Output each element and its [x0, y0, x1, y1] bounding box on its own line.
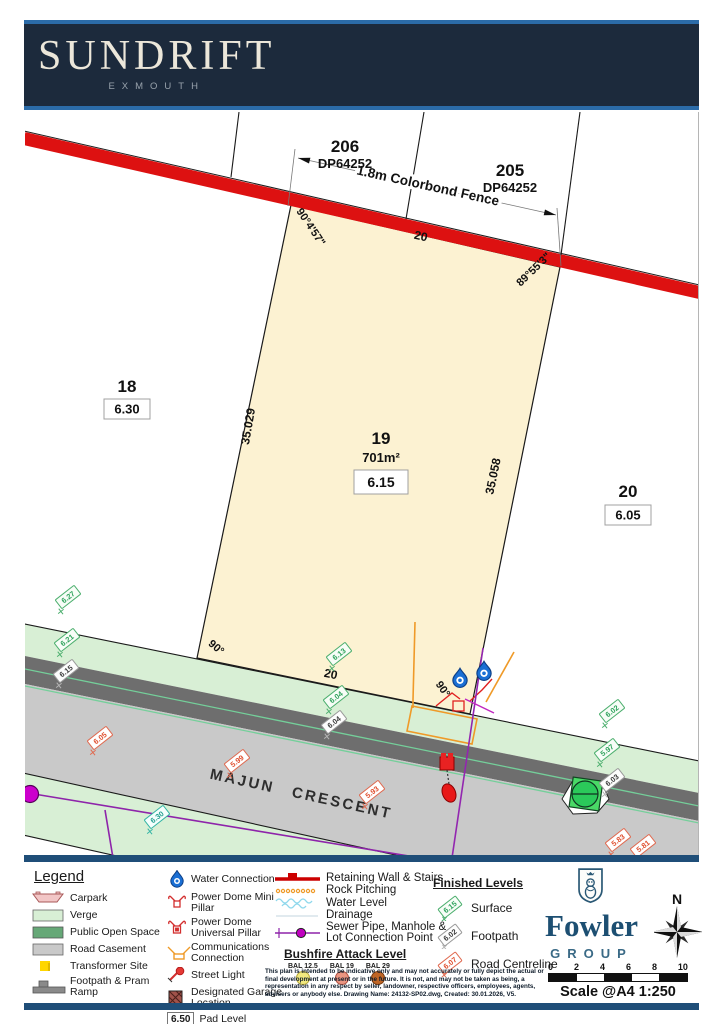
transformer-site-icon — [32, 959, 70, 973]
group-wordmark: GROUP — [519, 946, 664, 961]
lot-19-area: 701m² — [362, 450, 400, 465]
legend-lines-column: Retaining Wall & Stairs Rock Pitching Wa… — [274, 862, 449, 985]
lot-205-ref: DP64252 — [483, 180, 537, 195]
scale-bar-segments — [548, 973, 688, 982]
power-dome-mini-pillar-icon — [167, 894, 191, 912]
lot-19-pad-level: 6.15 — [367, 474, 394, 490]
finished-levels-title: Finished Levels — [433, 876, 568, 890]
legend-item-sewer: Sewer Pipe, Manhole & Lot Connection Poi… — [274, 922, 449, 944]
lot-20-pad-level: 6.05 — [615, 508, 640, 523]
lot-206-number: 206 — [331, 137, 359, 156]
legend-top-bar — [24, 855, 699, 862]
legend-item-verge: Verge — [32, 908, 167, 922]
bushfire-title: Bushfire Attack Level — [284, 947, 449, 961]
water-level-icon — [274, 897, 326, 909]
lot-20-number: 20 — [619, 482, 638, 501]
lot-18-number: 18 — [118, 377, 137, 396]
public-open-space-swatch-icon — [32, 925, 70, 939]
fence-label: 1.8m Colorbond Fence — [355, 163, 501, 209]
lot-19-number: 19 — [372, 429, 391, 448]
legend-bottom-bar — [24, 1003, 699, 1010]
street-light-icon — [167, 967, 191, 983]
lot-206-ref: DP64252 — [318, 156, 372, 171]
sewer-manhole — [22, 786, 39, 803]
retaining-wall-icon — [274, 872, 326, 884]
sewer-pipe-icon — [274, 926, 326, 940]
legend-item-rock-pitching: Rock Pitching — [274, 885, 449, 896]
fowler-crest-owl-icon — [577, 866, 604, 906]
fowler-wordmark: Fowler — [519, 908, 664, 944]
fence-dim-arrow-left — [298, 158, 310, 164]
scale-ticks: 0 2 4 6 8 10 — [548, 962, 688, 972]
footpath-pram-ramp-icon — [32, 978, 70, 996]
lot206-205-boundary — [406, 112, 424, 219]
road-casement-swatch-icon — [32, 942, 70, 956]
legend-item-public-open-space: Public Open Space — [32, 925, 167, 939]
legend-panel: Legend Carpark Verge Public Open Space R… — [24, 862, 699, 1003]
sundrift-lot-plan-page: SUNDRIFT EXMOUTH — [0, 0, 724, 1024]
power-dome-universal-pillar-icon — [167, 919, 191, 937]
legend-item-drainage: Drainage — [274, 910, 449, 921]
disclaimer-text: This plan is intended to be indicative o… — [265, 968, 553, 998]
carpark-swatch-icon — [32, 891, 70, 905]
level-label: 6.02 — [594, 699, 627, 730]
lot-18-pad-level: 6.30 — [114, 402, 139, 417]
scale-bar: 0 2 4 6 8 10 Scale @A4 1:250 — [548, 962, 688, 1000]
legend-item-retaining-wall: Retaining Wall & Stairs — [274, 872, 449, 884]
pad-level-sample-box: 6.50 — [167, 1012, 194, 1024]
lot-205-number: 205 — [496, 161, 524, 180]
surface-level-chip: 6.15 — [433, 894, 471, 921]
level-label: 6.27 — [50, 585, 83, 616]
north-label: N — [672, 891, 682, 907]
water-connection-icon — [167, 870, 191, 888]
rock-pitching-icon — [274, 886, 326, 896]
legend-item-road-casement: Road Casement — [32, 942, 167, 956]
verge-swatch-icon — [32, 908, 70, 922]
scale-label: Scale @A4 1:250 — [548, 984, 688, 1000]
legend-item-carpark: Carpark — [32, 891, 167, 905]
north-compass: N — [654, 890, 702, 962]
drainage-icon — [274, 912, 326, 920]
legend-item-footpath-pram-ramp: Footpath & Pram Ramp — [32, 976, 167, 997]
legend-areas-column: Legend Carpark Verge Public Open Space R… — [32, 862, 167, 1000]
lot205-east-boundary — [561, 112, 580, 255]
legend-item-water-level: Water Level — [274, 897, 449, 909]
legend-item-pad-level: 6.50 Pad Level — [167, 1012, 295, 1024]
legend-item-transformer-site: Transformer Site — [32, 959, 167, 973]
footpath-level-chip: 6.02 — [433, 922, 471, 949]
legend-title: Legend — [34, 868, 167, 885]
communications-connection-icon — [167, 945, 191, 961]
lot18-206-boundary — [231, 112, 239, 177]
fence-dim-arrow-right — [544, 210, 556, 216]
